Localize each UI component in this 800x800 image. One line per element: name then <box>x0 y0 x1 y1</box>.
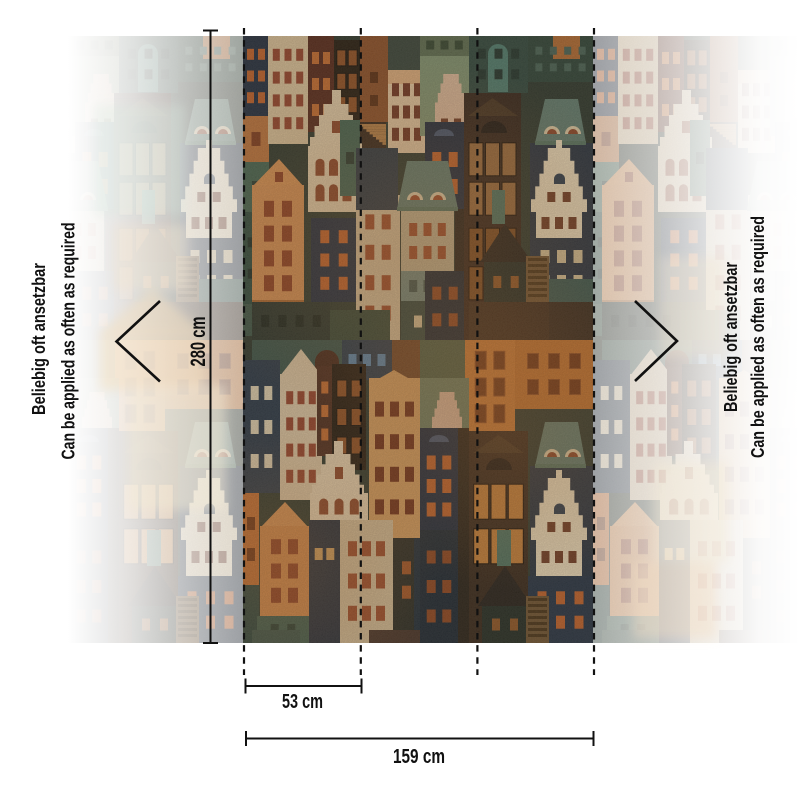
svg-text:280 cm: 280 cm <box>187 317 210 367</box>
svg-text:159 cm: 159 cm <box>393 746 445 768</box>
svg-text:Beliebig oft ansetzbar: Beliebig oft ansetzbar <box>29 263 49 415</box>
svg-text:Beliebig oft ansetzbar: Beliebig oft ansetzbar <box>721 262 741 412</box>
svg-text:53 cm: 53 cm <box>282 691 323 713</box>
svg-text:Can be applied as often as req: Can be applied as often as required <box>59 223 79 460</box>
svg-text:Can be applied as often as req: Can be applied as often as required <box>748 216 768 458</box>
